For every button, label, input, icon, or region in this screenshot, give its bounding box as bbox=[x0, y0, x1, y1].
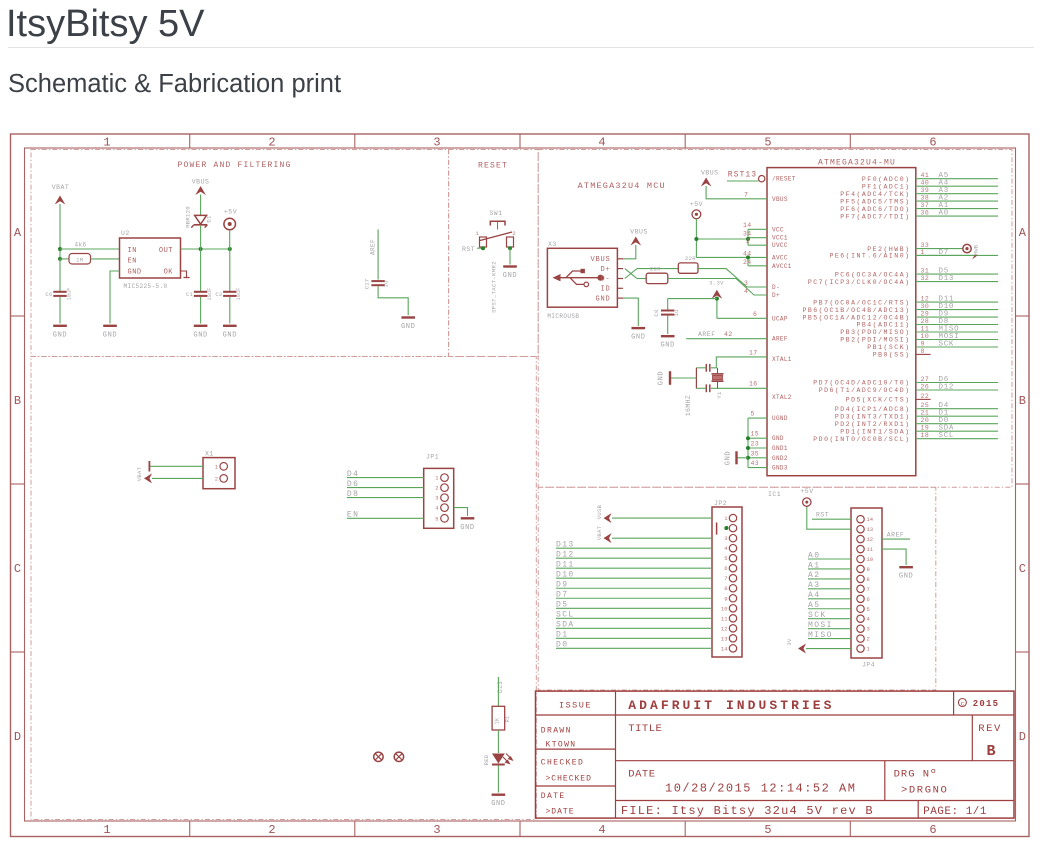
svg-text:POWER AND FILTERING: POWER AND FILTERING bbox=[178, 161, 292, 170]
svg-text:GND: GND bbox=[595, 295, 610, 303]
svg-text:PB4(ADC11): PB4(ADC11) bbox=[856, 322, 910, 329]
svg-text:>DATE: >DATE bbox=[546, 807, 575, 816]
svg-text:ATMEGA32U4-MU: ATMEGA32U4-MU bbox=[818, 159, 896, 168]
svg-text:IN: IN bbox=[128, 247, 137, 255]
svg-text:HWB: HWB bbox=[973, 244, 980, 255]
svg-text:XTAL1: XTAL1 bbox=[772, 356, 792, 363]
svg-text:PB0(SS): PB0(SS) bbox=[873, 352, 911, 359]
svg-text:10: 10 bbox=[867, 556, 874, 563]
svg-text:VBUS: VBUS bbox=[772, 196, 788, 203]
svg-text:DRAWN: DRAWN bbox=[541, 727, 572, 736]
svg-text:1: 1 bbox=[867, 646, 871, 653]
svg-text:VBUS: VBUS bbox=[192, 179, 210, 186]
svg-text:1u: 1u bbox=[383, 280, 390, 287]
svg-text:MIC5225-5.0: MIC5225-5.0 bbox=[124, 283, 168, 290]
svg-text:MISO: MISO bbox=[808, 631, 833, 640]
svg-text:A4: A4 bbox=[808, 591, 820, 600]
svg-text:D+: D+ bbox=[772, 292, 780, 299]
svg-text:D13: D13 bbox=[939, 275, 955, 283]
svg-text:12: 12 bbox=[721, 625, 728, 632]
svg-text:GND: GND bbox=[193, 331, 207, 339]
svg-text:GND: GND bbox=[491, 800, 505, 808]
svg-text:B: B bbox=[987, 743, 996, 760]
svg-text:2015: 2015 bbox=[973, 699, 999, 709]
svg-text:1: 1 bbox=[724, 515, 728, 522]
svg-text:D10: D10 bbox=[556, 571, 575, 580]
svg-text:VBAT: VBAT bbox=[136, 466, 143, 481]
svg-text:RESET: RESET bbox=[478, 162, 508, 171]
svg-text:UCAP: UCAP bbox=[772, 315, 788, 322]
svg-text:26: 26 bbox=[921, 384, 930, 391]
svg-text:VCC: VCC bbox=[772, 226, 784, 233]
svg-text:3: 3 bbox=[724, 535, 727, 542]
svg-text:PF0(ADC0): PF0(ADC0) bbox=[862, 176, 911, 183]
svg-text:VBAT: VBAT bbox=[52, 184, 70, 191]
svg-text:2: 2 bbox=[435, 485, 438, 492]
svg-text:3: 3 bbox=[867, 626, 870, 633]
svg-text:22R: 22R bbox=[650, 266, 661, 273]
svg-text:A3: A3 bbox=[808, 581, 820, 590]
svg-text:VBUS: VBUS bbox=[590, 256, 610, 264]
svg-text:8: 8 bbox=[724, 585, 727, 592]
svg-text:RST: RST bbox=[816, 512, 829, 519]
svg-text:D1: D1 bbox=[556, 631, 568, 640]
svg-text:GND: GND bbox=[660, 342, 674, 350]
svg-text:3V: 3V bbox=[786, 638, 793, 646]
svg-text:12: 12 bbox=[867, 536, 874, 543]
svg-text:GND: GND bbox=[725, 451, 733, 465]
svg-text:9: 9 bbox=[921, 341, 925, 348]
svg-text:JP4: JP4 bbox=[862, 662, 875, 669]
svg-text:8: 8 bbox=[867, 576, 870, 583]
svg-text:D0: D0 bbox=[556, 641, 568, 650]
svg-text:1: 1 bbox=[435, 475, 439, 482]
svg-text:ADAFRUIT INDUSTRIES: ADAFRUIT INDUSTRIES bbox=[628, 698, 834, 713]
svg-text:11: 11 bbox=[867, 546, 874, 553]
svg-text:4: 4 bbox=[598, 823, 605, 837]
svg-text:D9: D9 bbox=[556, 581, 568, 590]
svg-text:CHECKED: CHECKED bbox=[541, 759, 584, 768]
svg-text:D7: D7 bbox=[556, 591, 568, 600]
svg-text:5: 5 bbox=[435, 515, 438, 522]
svg-text:17: 17 bbox=[749, 349, 758, 356]
svg-text:PE6(INT.6/AIN0): PE6(INT.6/AIN0) bbox=[829, 253, 910, 260]
svg-text:JP1: JP1 bbox=[426, 454, 439, 461]
svg-text:SCK: SCK bbox=[808, 611, 827, 620]
svg-text:A: A bbox=[14, 226, 22, 240]
svg-text:10: 10 bbox=[921, 333, 930, 340]
svg-text:AVCC1: AVCC1 bbox=[772, 263, 792, 270]
svg-text:GND: GND bbox=[460, 524, 474, 532]
svg-text:9: 9 bbox=[724, 595, 727, 602]
svg-text:B: B bbox=[14, 394, 21, 408]
svg-text:PF4(ADC4/TCK): PF4(ADC4/TCK) bbox=[840, 191, 910, 198]
svg-text:SCL: SCL bbox=[556, 611, 575, 620]
svg-text:16MHZ: 16MHZ bbox=[685, 395, 692, 417]
svg-text:6: 6 bbox=[929, 823, 936, 837]
svg-text:40: 40 bbox=[921, 180, 930, 187]
svg-text:GND1: GND1 bbox=[772, 445, 788, 452]
svg-text:38: 38 bbox=[921, 195, 930, 202]
svg-text:RST: RST bbox=[462, 246, 475, 253]
svg-text:10/28/2015 12:14:52 AM: 10/28/2015 12:14:52 AM bbox=[665, 782, 856, 796]
svg-text:1M: 1M bbox=[76, 257, 83, 264]
svg-text:D+: D+ bbox=[600, 266, 610, 274]
svg-text:1: 1 bbox=[475, 230, 479, 237]
svg-text:D: D bbox=[14, 730, 21, 744]
svg-text:GND: GND bbox=[631, 334, 645, 342]
svg-text:35: 35 bbox=[751, 450, 760, 457]
svg-text:PB2(PDI/MOSI): PB2(PDI/MOSI) bbox=[840, 337, 910, 344]
svg-text:GND: GND bbox=[899, 573, 913, 581]
svg-text:RST13: RST13 bbox=[728, 171, 758, 180]
svg-text:REV: REV bbox=[978, 723, 1002, 735]
svg-text:GND: GND bbox=[503, 272, 517, 280]
svg-text:OK: OK bbox=[164, 269, 174, 277]
svg-text:2: 2 bbox=[867, 636, 870, 643]
svg-text:2: 2 bbox=[268, 136, 275, 150]
svg-text:PD5(XCK/CTS): PD5(XCK/CTS) bbox=[846, 397, 911, 404]
svg-text:5: 5 bbox=[764, 136, 771, 150]
svg-text:PD0(INT0/OC0B/SCL): PD0(INT0/OC0B/SCL) bbox=[813, 436, 910, 443]
svg-text:D1: D1 bbox=[206, 215, 213, 223]
svg-text:MICROUSB: MICROUSB bbox=[547, 313, 579, 320]
svg-text:D12: D12 bbox=[556, 550, 575, 559]
svg-text:AVCC: AVCC bbox=[772, 254, 788, 261]
svg-text:A0: A0 bbox=[939, 210, 949, 218]
svg-text:5: 5 bbox=[764, 823, 771, 837]
svg-text:22R: 22R bbox=[685, 255, 696, 262]
svg-text:SCL: SCL bbox=[939, 432, 955, 440]
svg-text:24: 24 bbox=[743, 259, 752, 266]
svg-text:DATE: DATE bbox=[541, 792, 566, 801]
svg-text:25: 25 bbox=[921, 402, 930, 409]
svg-text:D11: D11 bbox=[556, 561, 575, 570]
svg-text:C6: C6 bbox=[45, 291, 52, 298]
svg-text:ID: ID bbox=[600, 286, 610, 294]
svg-text:12: 12 bbox=[921, 296, 930, 303]
svg-text:A: A bbox=[1019, 226, 1027, 240]
svg-text:GND: GND bbox=[401, 323, 415, 331]
svg-text:A0: A0 bbox=[808, 551, 820, 560]
svg-text:16: 16 bbox=[749, 381, 758, 388]
svg-text:VBUS: VBUS bbox=[701, 170, 719, 177]
svg-text:D12: D12 bbox=[939, 384, 955, 392]
svg-text:DATE: DATE bbox=[628, 769, 655, 781]
svg-text:4: 4 bbox=[724, 545, 728, 552]
svg-text:5: 5 bbox=[724, 555, 727, 562]
svg-text:13: 13 bbox=[867, 526, 874, 533]
svg-text:19: 19 bbox=[921, 425, 930, 432]
svg-text:R1: R1 bbox=[505, 716, 511, 722]
svg-text:14: 14 bbox=[743, 222, 752, 229]
svg-text:PD2(INT2/RXD1): PD2(INT2/RXD1) bbox=[835, 421, 911, 428]
svg-text:AREF: AREF bbox=[370, 239, 377, 255]
svg-text:A1: A1 bbox=[808, 561, 820, 570]
svg-text:+5V: +5V bbox=[224, 209, 237, 216]
svg-text:D-: D- bbox=[600, 276, 610, 284]
svg-text:AREF: AREF bbox=[772, 336, 788, 343]
svg-text:EN: EN bbox=[128, 258, 137, 266]
svg-text:18: 18 bbox=[921, 432, 930, 439]
svg-text:PF1(ADC1): PF1(ADC1) bbox=[862, 183, 911, 190]
svg-text:14: 14 bbox=[721, 645, 728, 652]
svg-text:PB1(SCK): PB1(SCK) bbox=[867, 344, 910, 351]
svg-text:31: 31 bbox=[921, 268, 930, 275]
svg-text:20: 20 bbox=[921, 417, 930, 424]
svg-text:10: 10 bbox=[721, 605, 728, 612]
svg-text:C8: C8 bbox=[653, 309, 660, 316]
svg-text:PD6(T1/ADC9/OC4D): PD6(T1/ADC9/OC4D) bbox=[819, 387, 911, 394]
svg-text:PF5(ADC5/TMS): PF5(ADC5/TMS) bbox=[840, 198, 910, 205]
svg-text:VUSB: VUSB bbox=[596, 504, 603, 519]
svg-text:B: B bbox=[1019, 394, 1026, 408]
svg-text:IC1: IC1 bbox=[768, 491, 781, 498]
svg-text:DRG Nº: DRG Nº bbox=[894, 769, 938, 781]
svg-text:44: 44 bbox=[743, 250, 752, 257]
svg-text:X1: X1 bbox=[205, 451, 214, 458]
svg-text:PB5(OC1A/ADC12/OC4B): PB5(OC1A/ADC12/OC4B) bbox=[802, 314, 910, 321]
svg-text:GND: GND bbox=[223, 331, 237, 339]
svg-text:VBUS: VBUS bbox=[630, 229, 648, 236]
svg-text:C17: C17 bbox=[364, 279, 371, 290]
svg-text:5: 5 bbox=[751, 411, 755, 418]
svg-text:A5: A5 bbox=[808, 601, 820, 610]
svg-text:FILE: Itsy Bitsy 32u4 5V rev B: FILE: Itsy Bitsy 32u4 5V rev B bbox=[621, 804, 874, 818]
svg-text:PB6(OC1B/OC4B/ADC13): PB6(OC1B/OC4B/ADC13) bbox=[802, 307, 910, 314]
svg-text:13: 13 bbox=[721, 635, 728, 642]
svg-text:U2: U2 bbox=[121, 230, 130, 237]
svg-text:UGND: UGND bbox=[772, 415, 788, 422]
svg-text:6: 6 bbox=[724, 565, 727, 572]
svg-text:ATMEGA32U4 MCU: ATMEGA32U4 MCU bbox=[578, 181, 666, 191]
svg-text:29: 29 bbox=[921, 311, 930, 318]
svg-text:41: 41 bbox=[921, 172, 930, 179]
svg-text:37: 37 bbox=[921, 202, 930, 209]
svg-text:Y1: Y1 bbox=[716, 391, 723, 399]
svg-text:VBAT: VBAT bbox=[596, 525, 603, 540]
svg-text:RED: RED bbox=[483, 754, 490, 765]
svg-text:C: C bbox=[14, 562, 21, 576]
svg-text:10uF: 10uF bbox=[236, 288, 242, 301]
svg-text:9: 9 bbox=[867, 566, 870, 573]
svg-text:3: 3 bbox=[435, 495, 438, 502]
svg-text:43: 43 bbox=[751, 460, 760, 467]
svg-text:4k6: 4k6 bbox=[75, 241, 87, 248]
svg-text:PB3(PDO/MISO): PB3(PDO/MISO) bbox=[840, 329, 910, 336]
svg-text:PD4(ICP1/ADC8): PD4(ICP1/ADC8) bbox=[835, 406, 911, 413]
svg-text:32: 32 bbox=[921, 275, 930, 282]
svg-text:11: 11 bbox=[921, 326, 930, 333]
svg-text:A2: A2 bbox=[808, 571, 820, 580]
svg-text:AREF: AREF bbox=[887, 532, 905, 539]
svg-text:UVCC: UVCC bbox=[772, 242, 788, 249]
svg-text:C1: C1 bbox=[186, 291, 194, 298]
svg-text:GND: GND bbox=[658, 371, 666, 385]
svg-text:>DRGNO: >DRGNO bbox=[901, 785, 948, 797]
svg-text:ISSUE: ISSUE bbox=[559, 701, 592, 711]
svg-text:28: 28 bbox=[921, 318, 930, 325]
svg-text:PC7(ICP3/CLK0/OC4A): PC7(ICP3/CLK0/OC4A) bbox=[808, 279, 911, 286]
svg-text:6: 6 bbox=[929, 136, 936, 150]
svg-text:D5: D5 bbox=[556, 601, 568, 610]
svg-text:1: 1 bbox=[103, 823, 110, 837]
svg-text:7: 7 bbox=[724, 575, 727, 582]
svg-text:PD3(INT3/TXD1): PD3(INT3/TXD1) bbox=[835, 413, 911, 420]
svg-text:XTAL2: XTAL2 bbox=[772, 394, 792, 401]
svg-text:3.3V: 3.3V bbox=[709, 280, 724, 287]
svg-text:4: 4 bbox=[598, 136, 605, 150]
svg-text:C: C bbox=[1019, 562, 1026, 576]
svg-text:MBR120: MBR120 bbox=[185, 206, 192, 228]
svg-text:1: 1 bbox=[215, 463, 219, 470]
svg-text:15: 15 bbox=[751, 431, 760, 438]
svg-text:11: 11 bbox=[721, 615, 728, 622]
svg-text:C2: C2 bbox=[215, 291, 222, 298]
svg-text:10uF: 10uF bbox=[67, 288, 73, 301]
svg-text:>CHECKED: >CHECKED bbox=[546, 775, 592, 784]
svg-text:KTOWN: KTOWN bbox=[546, 740, 577, 749]
svg-text:VCC1: VCC1 bbox=[772, 235, 788, 242]
svg-text:14: 14 bbox=[867, 516, 874, 523]
svg-text:EN: EN bbox=[347, 511, 359, 520]
svg-text:MOSI: MOSI bbox=[808, 621, 833, 630]
svg-text:1u: 1u bbox=[673, 309, 680, 316]
svg-text:2: 2 bbox=[512, 230, 515, 237]
svg-text:GND3: GND3 bbox=[772, 465, 788, 472]
svg-text:D-: D- bbox=[772, 284, 780, 291]
svg-text:PB7(OC0A/OC1C/RTS): PB7(OC0A/OC1C/RTS) bbox=[813, 299, 910, 306]
svg-text:42: 42 bbox=[724, 331, 733, 338]
svg-text:D4: D4 bbox=[347, 470, 359, 479]
svg-text:2: 2 bbox=[746, 238, 750, 245]
svg-text:GND: GND bbox=[103, 331, 117, 339]
svg-text:OUT: OUT bbox=[159, 247, 173, 255]
svg-text:D: D bbox=[1019, 730, 1026, 744]
svg-text:4: 4 bbox=[867, 616, 871, 623]
svg-text:PF6(ADC6/TDO): PF6(ADC6/TDO) bbox=[840, 206, 910, 213]
svg-text:SPST_TACT-KMR2: SPST_TACT-KMR2 bbox=[491, 261, 498, 313]
svg-text:TITLE: TITLE bbox=[628, 723, 662, 735]
svg-text:PC6(OC3A/OC4A): PC6(OC3A/OC4A) bbox=[835, 271, 911, 278]
svg-text:AREF: AREF bbox=[698, 331, 716, 338]
svg-text:+5V: +5V bbox=[800, 488, 813, 495]
svg-text:4: 4 bbox=[744, 288, 748, 295]
svg-text:6: 6 bbox=[753, 311, 757, 318]
svg-text:SCK: SCK bbox=[939, 341, 955, 349]
svg-text:27: 27 bbox=[921, 376, 930, 383]
svg-text:D13: D13 bbox=[556, 540, 575, 549]
svg-text:30: 30 bbox=[921, 303, 930, 310]
svg-text:/RESET: /RESET bbox=[772, 176, 796, 183]
svg-text:JP2: JP2 bbox=[714, 500, 727, 507]
svg-text:4: 4 bbox=[435, 505, 439, 512]
svg-text:D6: D6 bbox=[347, 480, 359, 489]
svg-text:SDA: SDA bbox=[556, 621, 575, 630]
svg-text:PD7(OC4D/ADC10/T0): PD7(OC4D/ADC10/T0) bbox=[813, 380, 910, 387]
svg-text:39: 39 bbox=[921, 187, 930, 194]
svg-text:21: 21 bbox=[921, 410, 930, 417]
svg-text:PD1(INT1/SDA): PD1(INT1/SDA) bbox=[840, 428, 910, 435]
svg-text:5: 5 bbox=[867, 606, 870, 613]
svg-text:GND: GND bbox=[53, 331, 67, 339]
svg-text:SW1: SW1 bbox=[489, 210, 502, 217]
svg-text:PF7(ADC7/TDI): PF7(ADC7/TDI) bbox=[840, 213, 910, 220]
svg-text:+5V: +5V bbox=[690, 201, 703, 208]
svg-text:3: 3 bbox=[433, 136, 440, 150]
svg-text:GND2: GND2 bbox=[772, 455, 788, 462]
svg-text:23: 23 bbox=[751, 441, 760, 448]
svg-text:36: 36 bbox=[921, 210, 930, 217]
svg-text:PAGE: 1/1: PAGE: 1/1 bbox=[923, 806, 987, 818]
svg-text:GND: GND bbox=[772, 435, 784, 442]
svg-text:3: 3 bbox=[433, 823, 440, 837]
svg-text:34: 34 bbox=[743, 231, 752, 238]
svg-text:6: 6 bbox=[867, 596, 870, 603]
svg-text:1: 1 bbox=[103, 136, 110, 150]
svg-text:X3: X3 bbox=[548, 241, 557, 248]
svg-text:7: 7 bbox=[744, 191, 748, 198]
svg-text:1K: 1K bbox=[494, 718, 500, 724]
svg-text:7: 7 bbox=[867, 586, 870, 593]
svg-text:2: 2 bbox=[268, 823, 275, 837]
svg-text:10uF: 10uF bbox=[207, 288, 213, 301]
svg-text:GND: GND bbox=[128, 269, 142, 277]
svg-text:2: 2 bbox=[215, 475, 218, 482]
svg-text:D8: D8 bbox=[347, 490, 359, 499]
